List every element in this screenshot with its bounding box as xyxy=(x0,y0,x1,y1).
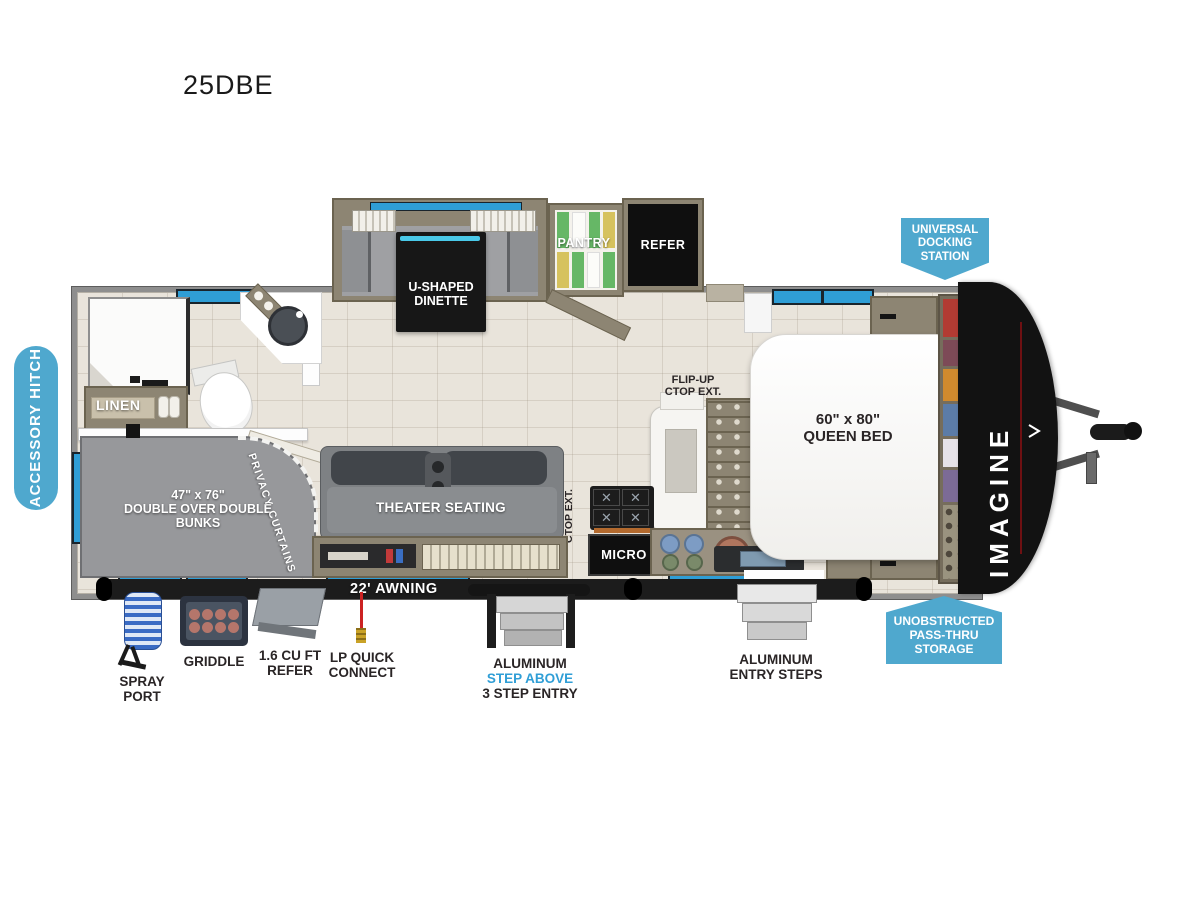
dinette-line1: U-SHAPED xyxy=(398,280,484,294)
seat-back xyxy=(331,451,435,485)
queen-line2: QUEEN BED xyxy=(768,429,928,446)
griddle-burner-icon xyxy=(202,609,213,620)
refrigerator-body: REFER xyxy=(628,204,698,286)
burner-icon: ✕ xyxy=(593,509,620,526)
spray-port-hose xyxy=(124,592,162,650)
brand-accent-line xyxy=(1020,322,1022,554)
accessory-hitch-badge: ACCESSORY HITCH xyxy=(14,346,58,510)
entry-steps-line1: ALUMINUM xyxy=(728,652,824,667)
spray-nozzle-icon xyxy=(120,659,146,669)
dinette-bench xyxy=(507,230,538,292)
handle-icon xyxy=(880,561,896,566)
refer-label: REFER xyxy=(641,238,686,252)
flip-up-label: FLIP-UP CTOP EXT. xyxy=(648,374,738,399)
lp-connector-icon xyxy=(356,628,366,643)
docking-line3: STATION xyxy=(901,251,989,264)
island-inset xyxy=(665,429,697,493)
window xyxy=(772,289,874,305)
entry-step xyxy=(747,622,807,640)
floorplan-page: 25DBE LINEN 47" x 76" DOUBLE OVER DOUBLE xyxy=(0,0,1200,900)
theater-label: THEATER SEATING xyxy=(326,500,556,515)
step3-label: ALUMINUM STEP ABOVE 3 STEP ENTRY xyxy=(478,656,582,701)
table-accent xyxy=(400,236,480,241)
burner-icon: ✕ xyxy=(593,489,620,506)
accessory-hitch-receiver xyxy=(126,424,140,438)
step-rail xyxy=(487,594,496,648)
step xyxy=(496,596,568,613)
step xyxy=(500,613,564,630)
queen-bed xyxy=(750,334,944,560)
spray-port-line1: SPRAY xyxy=(104,674,180,689)
towel-roll xyxy=(262,299,275,312)
entry-step xyxy=(742,603,812,622)
griddle-burner-icon xyxy=(228,622,239,633)
towel-roll xyxy=(252,290,265,303)
outside-refer-line1: 1.6 CU FT xyxy=(252,648,328,663)
faucet-icon xyxy=(296,311,303,318)
dinette-pillows xyxy=(352,210,396,232)
griddle-burner-icon xyxy=(189,622,200,633)
outside-refer-label: 1.6 CU FT REFER xyxy=(252,648,328,678)
pantry-item xyxy=(587,252,601,288)
stove: ✕ ✕ ✕ ✕ xyxy=(590,486,654,530)
media-item xyxy=(396,549,403,563)
burner-icon: ✕ xyxy=(622,489,649,506)
universal-docking-badge: UNIVERSAL DOCKING STATION xyxy=(901,218,989,280)
queen-size: 60" x 80" xyxy=(768,412,928,429)
docking-line1: UNIVERSAL xyxy=(901,224,989,237)
grand-design-logo-icon xyxy=(1027,423,1041,439)
dinette-bench xyxy=(342,230,371,292)
pantry-shelves xyxy=(555,210,617,290)
brand-wordmark: IMAGINE xyxy=(984,298,1015,578)
bookshelf xyxy=(422,544,560,570)
linen-label: LINEN xyxy=(96,398,141,414)
cupholder-icon xyxy=(432,461,444,473)
griddle-burner-icon xyxy=(202,622,213,633)
pass-thru-line1: UNOBSTRUCTED xyxy=(886,615,1002,629)
lp-line1: LP QUICK xyxy=(322,650,402,665)
docking-line2: DOCKING xyxy=(901,237,989,250)
pass-thru-badge: UNOBSTRUCTED PASS-THRU STORAGE xyxy=(886,596,1002,664)
window-divider xyxy=(821,291,824,303)
seat-back xyxy=(443,451,547,485)
oven-handle xyxy=(594,528,650,533)
griddle-label: GRIDDLE xyxy=(178,654,250,669)
griddle-burner-icon xyxy=(228,609,239,620)
griddle-burner-icon xyxy=(215,622,226,633)
linen-roll xyxy=(169,396,180,418)
flip-up-line1: FLIP-UP xyxy=(648,374,738,386)
entertainment-cabinet xyxy=(312,536,568,578)
step3-line1: ALUMINUM xyxy=(478,656,582,671)
flip-up-line2: CTOP EXT. xyxy=(648,386,738,398)
step xyxy=(504,630,562,646)
sink-knob xyxy=(684,534,704,554)
pantry-item xyxy=(557,252,569,288)
lp-label: LP QUICK CONNECT xyxy=(322,650,402,680)
awning-endcap xyxy=(856,577,872,601)
hitch-jack xyxy=(1086,452,1097,484)
pantry-item xyxy=(603,252,615,288)
shower xyxy=(88,297,190,395)
outside-refer-panel xyxy=(252,588,326,626)
lp-line xyxy=(360,592,363,628)
queen-bed-label: 60" x 80" QUEEN BED xyxy=(768,412,928,446)
outside-refer-line2: REFER xyxy=(252,663,328,678)
entry-steps-line2: ENTRY STEPS xyxy=(728,667,824,682)
awning-roller-joint xyxy=(624,578,642,600)
handle-icon xyxy=(880,314,896,319)
awning-endcap xyxy=(96,577,112,601)
hitch-ball-knob xyxy=(1124,422,1142,440)
sink-basin xyxy=(268,306,308,346)
bedroom-dresser xyxy=(744,293,772,333)
media-console xyxy=(320,544,416,568)
pantry-item xyxy=(572,252,584,288)
pantry-row xyxy=(557,252,615,288)
shower-fixture-icon xyxy=(130,376,140,383)
pass-thru-line3: STORAGE xyxy=(886,643,1002,657)
step3-line3: 3 STEP ENTRY xyxy=(478,686,582,701)
griddle xyxy=(180,596,248,646)
entry-steps-label: ALUMINUM ENTRY STEPS xyxy=(728,652,824,682)
spray-port-label: SPRAY PORT xyxy=(104,674,180,704)
kitchen-island xyxy=(650,406,710,532)
linen-roll xyxy=(158,396,169,418)
burner-knob xyxy=(662,554,679,571)
burner-icon: ✕ xyxy=(622,509,649,526)
micro-label: MICRO xyxy=(601,548,647,563)
dinette-line2: DINETTE xyxy=(398,294,484,308)
front-cap: IMAGINE xyxy=(958,282,1058,594)
griddle-burner-icon xyxy=(189,609,200,620)
griddle-burner-icon xyxy=(215,609,226,620)
lp-line2: CONNECT xyxy=(322,665,402,680)
theater-seating xyxy=(320,446,564,540)
island-drawers xyxy=(706,398,754,538)
sink-knob xyxy=(660,534,680,554)
page-title: 25DBE xyxy=(183,70,274,100)
dinette-label: U-SHAPED DINETTE xyxy=(398,280,484,308)
media-item xyxy=(386,549,393,563)
spray-port-line2: PORT xyxy=(104,689,180,704)
dinette-pillows xyxy=(470,210,536,232)
pass-thru-line2: PASS-THRU xyxy=(886,629,1002,643)
burner-knob xyxy=(686,554,703,571)
pantry xyxy=(548,203,624,297)
media-item xyxy=(328,552,368,560)
pantry-label: PANTRY xyxy=(554,236,614,250)
entry-step xyxy=(737,584,817,603)
accessory-hitch-label: ACCESSORY HITCH xyxy=(27,348,44,507)
galley-step xyxy=(706,284,744,302)
step3-line2: STEP ABOVE xyxy=(478,671,582,686)
refrigerator: REFER xyxy=(622,198,704,292)
dinette-table: U-SHAPED DINETTE xyxy=(396,232,486,332)
griddle-surface xyxy=(186,602,242,640)
awning-label: 22' AWNING xyxy=(350,581,438,597)
